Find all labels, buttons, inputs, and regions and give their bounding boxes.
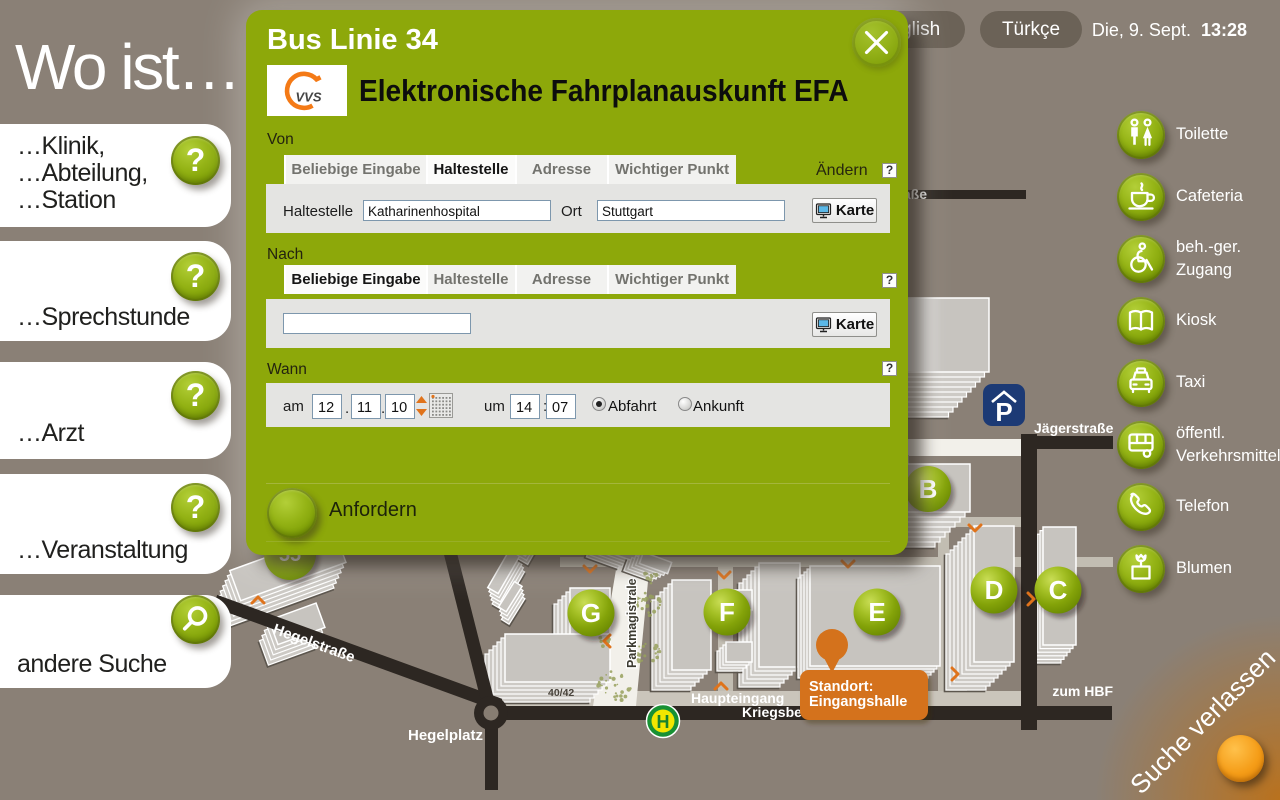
svg-text:40/42: 40/42 [548,687,574,699]
svg-text:Hegelplatz: Hegelplatz [408,727,483,744]
svg-text:Parkmagistrale: Parkmagistrale [625,578,639,668]
svg-text:Eingangshalle: Eingangshalle [809,694,907,710]
svg-text:VVS: VVS [296,90,322,105]
svg-text:F: F [719,597,735,627]
svg-text:Jägerstraße: Jägerstraße [1034,420,1114,436]
svg-text:P: P [995,397,1012,427]
svg-text:B: B [919,474,938,504]
svg-text:Standort:: Standort: [809,679,873,695]
svg-text:G: G [581,598,601,628]
svg-text:H: H [657,712,670,732]
svg-text:E: E [868,597,885,627]
